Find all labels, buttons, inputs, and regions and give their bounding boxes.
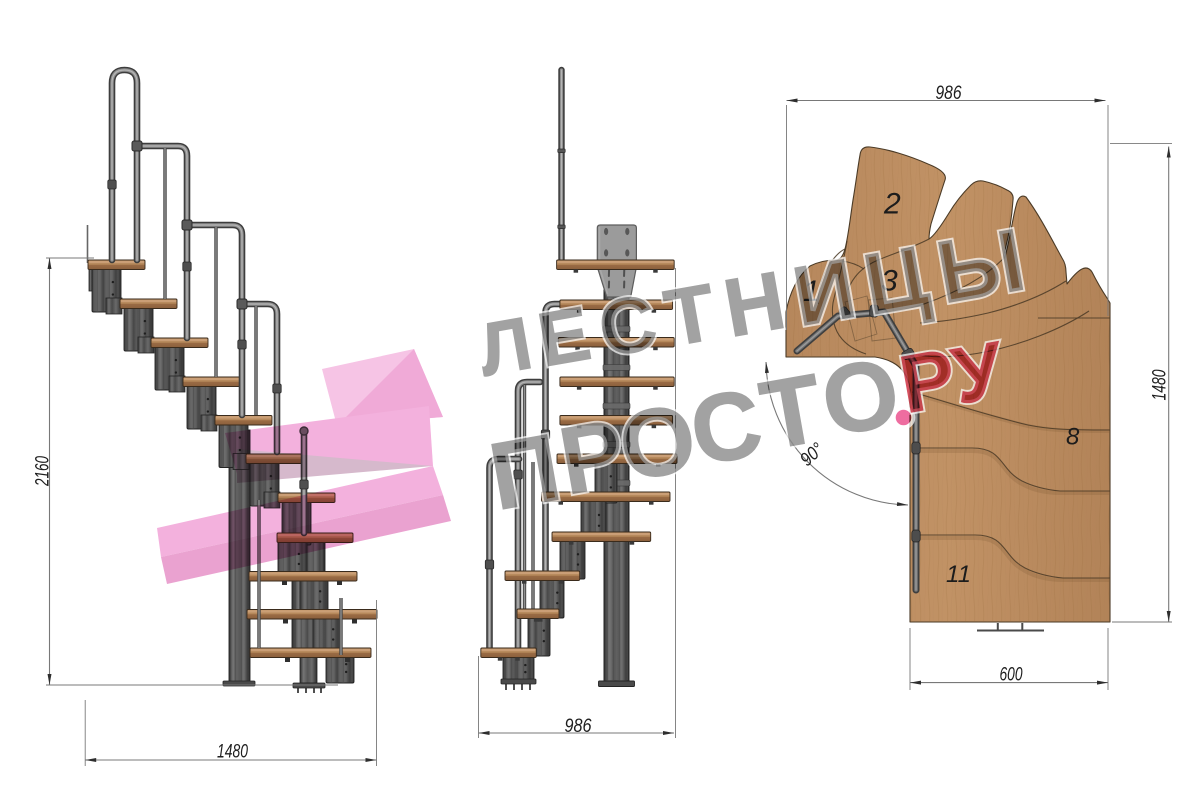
svg-text:986: 986: [565, 716, 592, 737]
svg-text:8: 8: [1066, 424, 1080, 451]
svg-text:1480: 1480: [217, 742, 248, 763]
svg-text:986: 986: [936, 83, 962, 104]
svg-text:Ы: Ы: [930, 209, 1032, 321]
svg-text:2: 2: [883, 188, 901, 221]
svg-text:1480: 1480: [1150, 369, 1171, 400]
svg-text:2160: 2160: [33, 456, 54, 487]
svg-text:600: 600: [1000, 665, 1023, 686]
svg-text:11: 11: [946, 561, 971, 588]
